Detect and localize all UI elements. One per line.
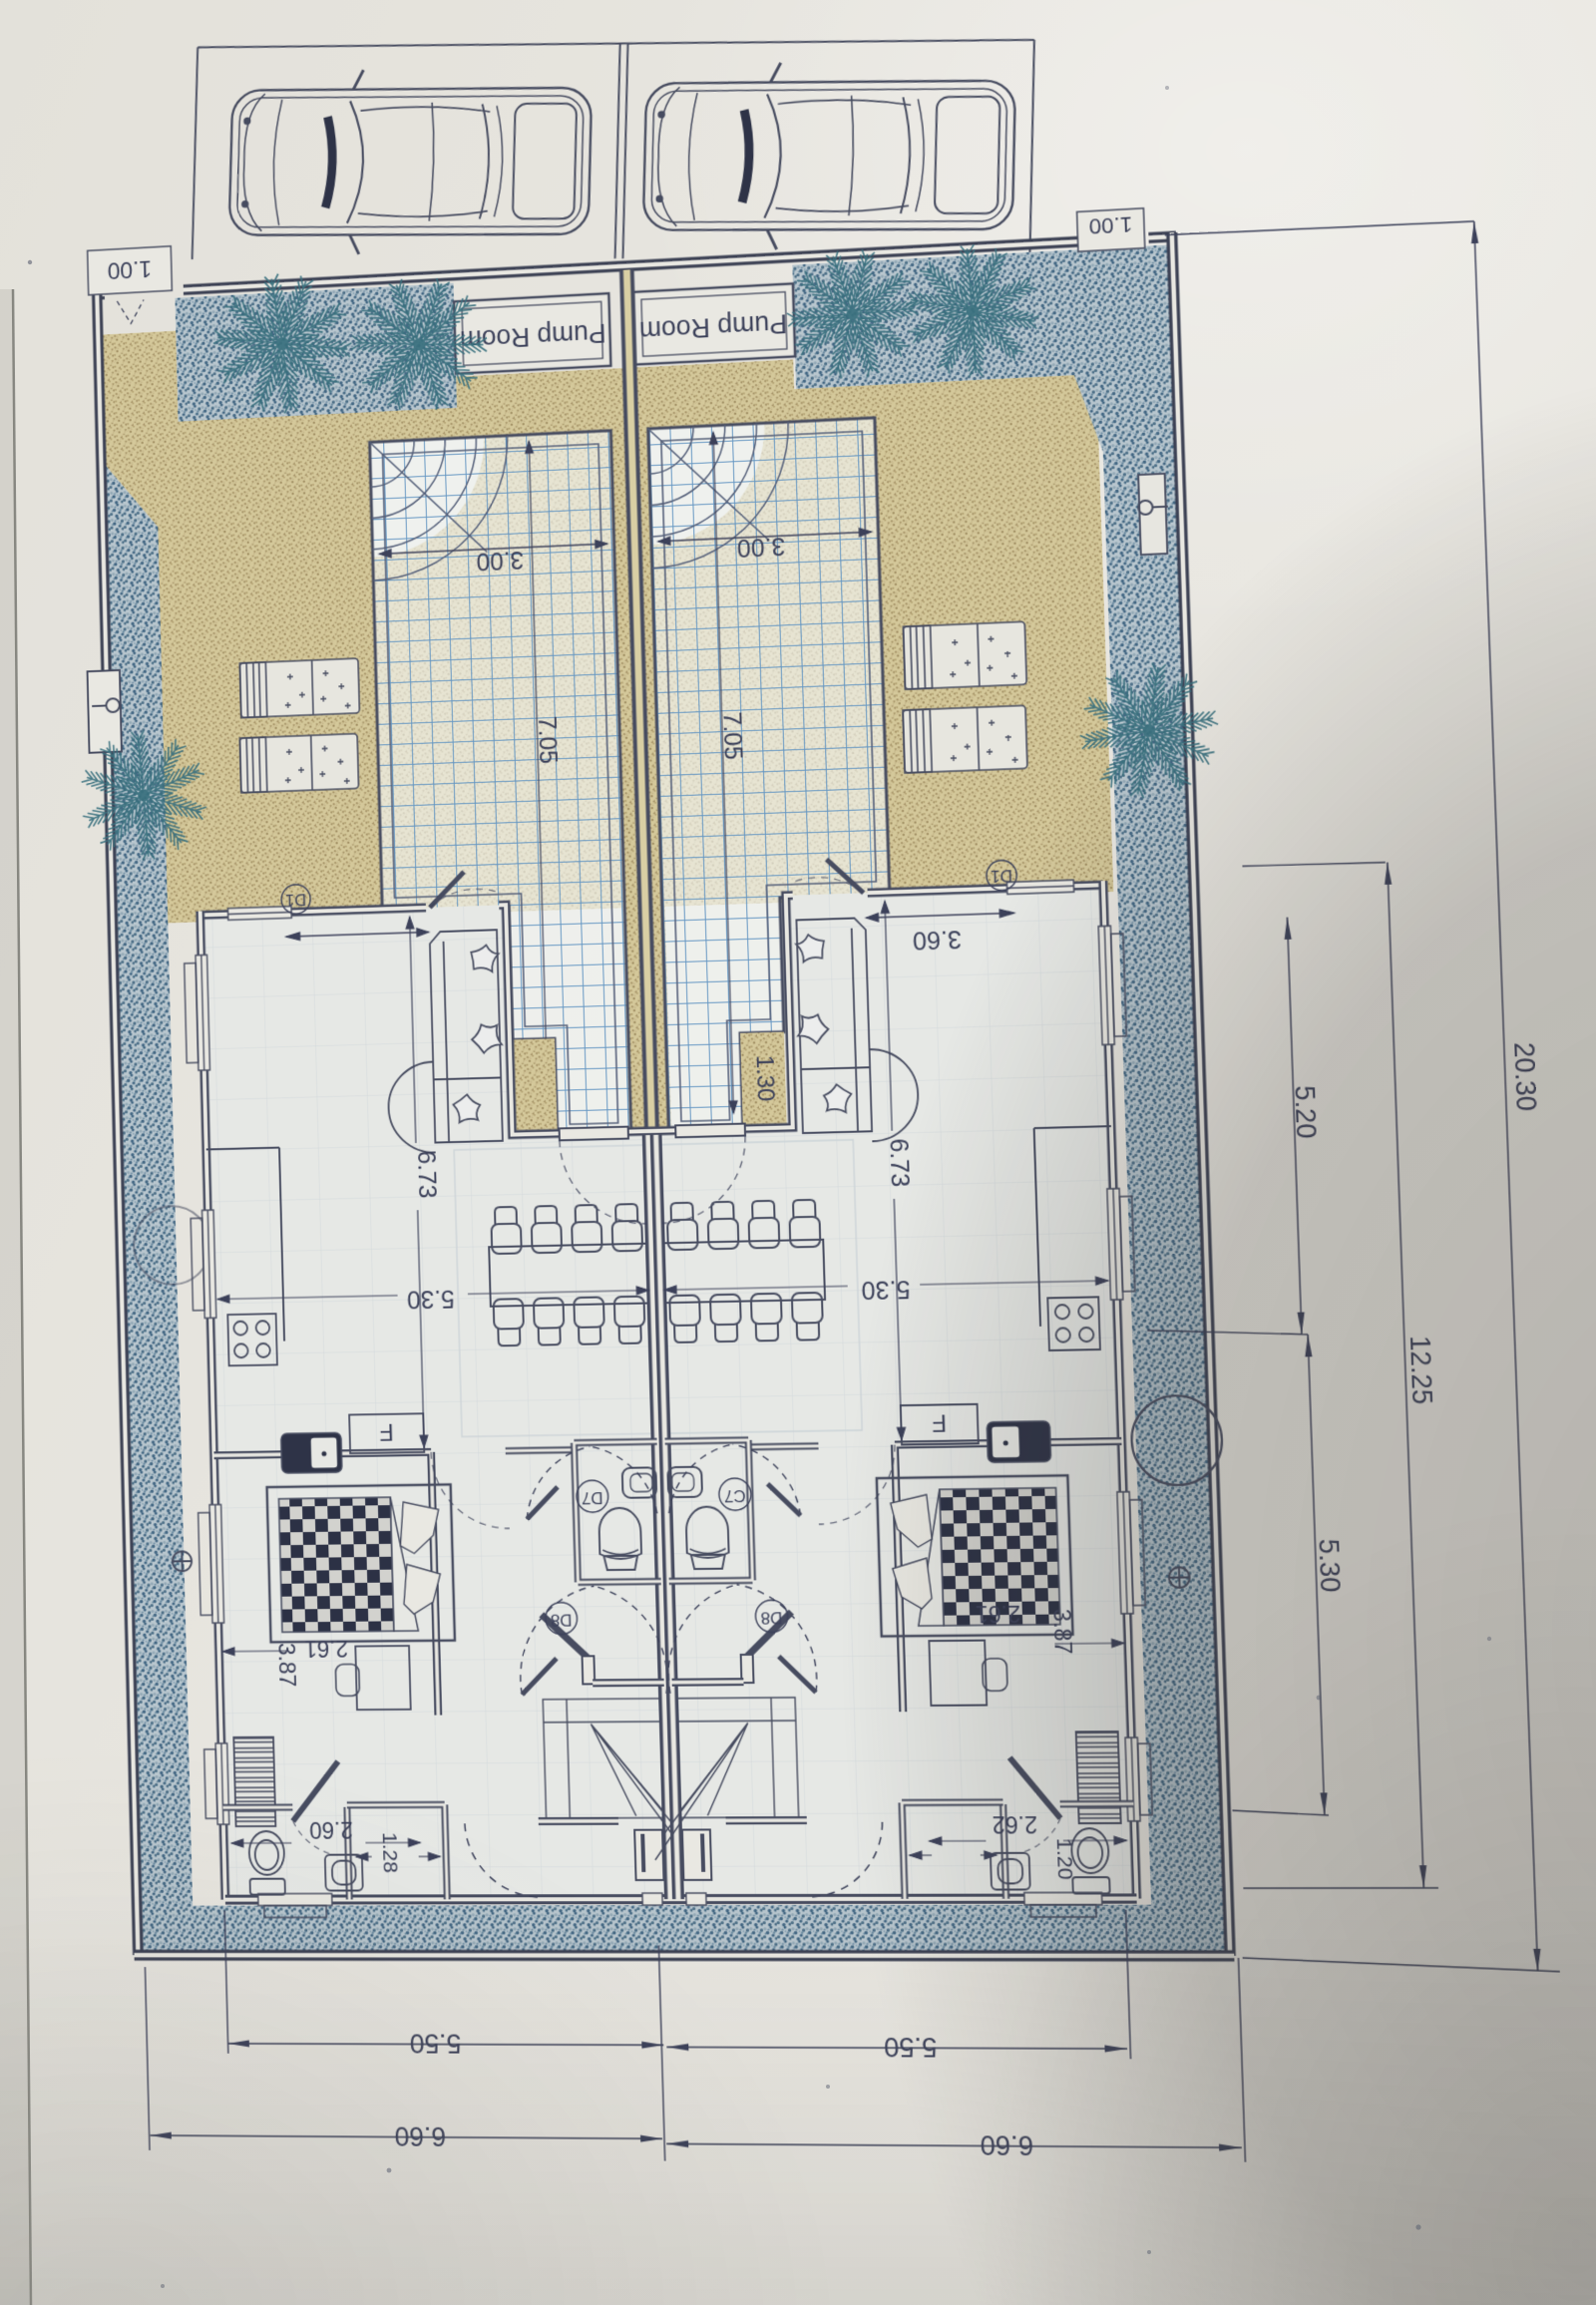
svg-text:3.00: 3.00 [737, 532, 786, 561]
svg-text:6.60: 6.60 [980, 2129, 1034, 2160]
svg-text:2.62: 2.62 [992, 1811, 1037, 1838]
svg-text:D1: D1 [285, 890, 306, 909]
svg-text:3.87: 3.87 [1048, 1609, 1076, 1655]
svg-text:2.60: 2.60 [309, 1816, 353, 1842]
svg-text:1.00: 1.00 [107, 255, 152, 284]
svg-text:5.50: 5.50 [409, 2028, 461, 2058]
svg-text:D7: D7 [582, 1488, 603, 1507]
svg-text:F: F [932, 1409, 948, 1437]
svg-text:7.05: 7.05 [717, 711, 746, 760]
svg-text:20.30: 20.30 [1508, 1042, 1541, 1112]
svg-text:F: F [379, 1418, 394, 1445]
svg-text:5.30: 5.30 [1313, 1539, 1345, 1593]
svg-text:7.05: 7.05 [533, 715, 561, 764]
svg-text:1.20: 1.20 [1051, 1838, 1076, 1880]
svg-text:5.30: 5.30 [861, 1275, 911, 1304]
svg-text:12.25: 12.25 [1403, 1336, 1436, 1405]
svg-text:2.61: 2.61 [304, 1635, 348, 1662]
svg-text:3.00: 3.00 [476, 546, 524, 575]
svg-text:1.30: 1.30 [751, 1054, 780, 1101]
svg-text:1.28: 1.28 [378, 1832, 402, 1873]
svg-text:6.73: 6.73 [884, 1138, 913, 1187]
svg-text:3.87: 3.87 [273, 1643, 300, 1688]
svg-text:5.50: 5.50 [884, 2032, 938, 2062]
svg-text:D8: D8 [760, 1608, 782, 1627]
svg-text:1.00: 1.00 [1088, 211, 1132, 237]
svg-text:5.30: 5.30 [407, 1284, 455, 1312]
svg-text:6.60: 6.60 [394, 2120, 446, 2150]
svg-text:C7: C7 [724, 1486, 746, 1505]
svg-text:5.20: 5.20 [1289, 1085, 1321, 1139]
svg-text:3.60: 3.60 [913, 925, 963, 954]
svg-text:2.61: 2.61 [975, 1600, 1020, 1627]
svg-text:D8: D8 [551, 1610, 573, 1629]
svg-text:D1: D1 [991, 866, 1013, 886]
svg-text:6.73: 6.73 [412, 1150, 440, 1199]
